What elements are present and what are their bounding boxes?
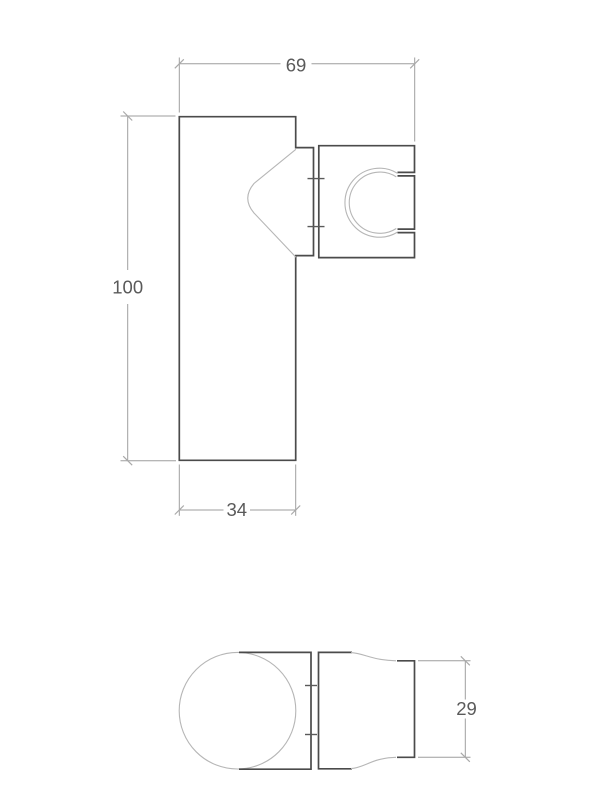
dimension-overall-width-label: 69	[286, 55, 307, 76]
dimension-holder-depth: 29	[418, 656, 477, 762]
joint-break-marks	[308, 179, 325, 227]
wall-plate-circle	[179, 652, 296, 769]
holder-left-outline	[319, 652, 353, 768]
plan-view: 29	[179, 652, 477, 769]
holder-right-outline	[397, 661, 415, 758]
holder-slot-line	[398, 176, 415, 229]
holder-bottom-curve	[351, 757, 396, 768]
clip-inner-arc	[349, 172, 396, 233]
dimension-body-width: 34	[175, 465, 300, 521]
dimension-overall-width: 69	[175, 55, 419, 142]
dimension-body-width-label: 34	[227, 499, 248, 520]
cone-profile-line	[248, 149, 296, 257]
wall-plate-outline	[179, 117, 313, 461]
mount-block-outline	[239, 652, 311, 769]
clip-outer-arc	[345, 168, 398, 237]
technical-drawing-svg: 69 100 34	[0, 0, 602, 800]
dimension-body-height-label: 100	[112, 277, 143, 298]
drawing-canvas: 69 100 34	[0, 0, 602, 800]
holder-body-outline	[319, 146, 415, 258]
holder-top-curve	[351, 653, 396, 661]
elevation-view: 69 100 34	[112, 55, 419, 521]
dimension-holder-depth-label: 29	[456, 698, 477, 719]
dimension-body-height: 100	[112, 112, 176, 466]
